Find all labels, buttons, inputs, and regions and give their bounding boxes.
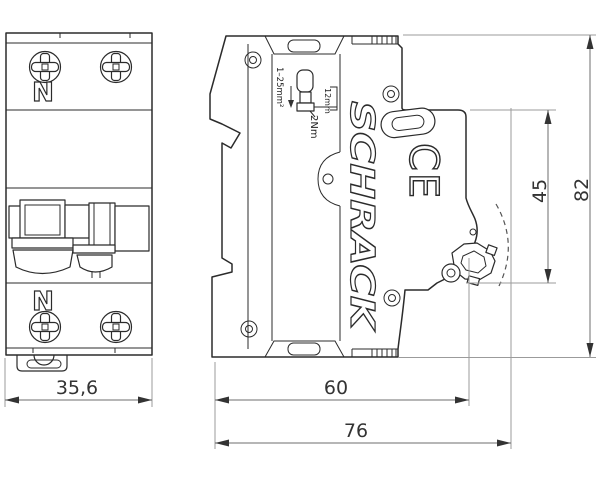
- neutral-label-bottom: N: [32, 287, 54, 317]
- body-depth-dimension-label: 60: [324, 377, 348, 399]
- neutral-label-top: N: [32, 78, 54, 108]
- breaker-dimension-drawing: N N 35,6: [0, 0, 600, 480]
- total-depth-dimension-label: 76: [344, 420, 368, 442]
- wire-range-label: 1–25mm²: [274, 67, 284, 107]
- torque-label: 2Nm: [308, 115, 319, 139]
- side-view: 1–25mm² 12mm 2Nm SCHRACK CE: [210, 36, 508, 357]
- technical-drawing: N N 35,6: [0, 0, 600, 480]
- total-height-dimension-label: 82: [571, 178, 593, 202]
- ce-mark: CE: [400, 143, 446, 200]
- strip-length-label: 12mm: [323, 88, 332, 114]
- width-dimension-label: 35,6: [56, 377, 98, 399]
- brand-logo: SCHRACK: [343, 101, 382, 332]
- din-clip-tab: [17, 355, 67, 371]
- front-view: N N 35,6: [5, 33, 152, 407]
- screw-terminal-icon: [101, 52, 132, 83]
- front-height-dimension-label: 45: [529, 179, 551, 203]
- clamp-swing-arc: [496, 204, 508, 286]
- screw-terminal-icon: [101, 312, 132, 343]
